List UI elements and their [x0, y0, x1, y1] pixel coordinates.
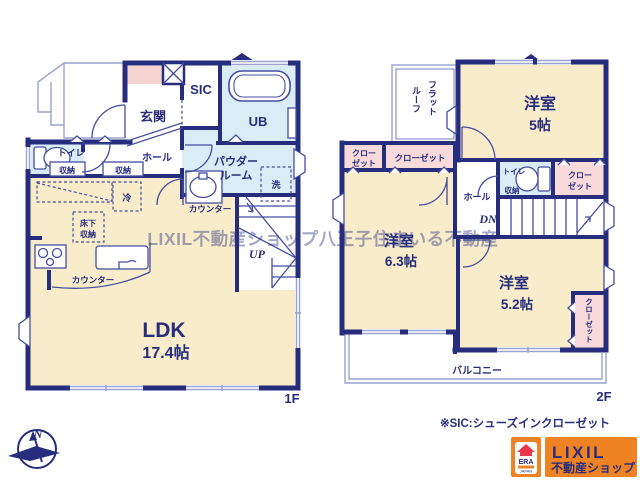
- label-powder-1: パウダー: [214, 154, 258, 168]
- lixil-logo: ERA JAPAN LIXIL 不動産ショップ: [511, 437, 637, 477]
- era-label: ERA: [519, 459, 534, 466]
- entrance-porch: [38, 63, 125, 138]
- kitchen-stove-icon: [35, 245, 66, 268]
- label-ldk: LDK: [142, 319, 185, 342]
- lixil-brand-label: LIXIL: [552, 443, 606, 462]
- label-underfloor-1: 床下: [80, 218, 96, 228]
- label-room63-size: 6.3帖: [385, 253, 418, 269]
- label-toilet-2f: トイレ: [503, 167, 526, 176]
- label-dn: DN: [478, 212, 498, 226]
- label-genkan: 玄関: [140, 109, 166, 124]
- label-sic: SIC: [190, 82, 212, 97]
- label-room5-size: 5帖: [529, 117, 551, 133]
- label-room5: 洋室: [524, 94, 556, 113]
- compass-north-icon: N: [8, 427, 60, 468]
- label-room52: 洋室: [499, 274, 529, 292]
- flat-roof: [392, 65, 458, 143]
- bay-window-right-stairs: [604, 201, 614, 232]
- label-up: UP: [249, 247, 266, 261]
- label-hall-1f: ホール: [142, 152, 172, 164]
- label-closet-d: クローゼット: [584, 298, 593, 344]
- era-japan-label: JAPAN: [520, 469, 533, 474]
- label-counter-a: カウンター: [189, 204, 232, 214]
- label-hall-2f: ホール: [463, 192, 490, 202]
- label-powder-2: ルーム: [220, 169, 253, 182]
- label-1f: 1F: [284, 391, 299, 406]
- label-2f: 2F: [596, 389, 611, 404]
- sic-note: ※SIC:シューズインクローゼット: [440, 416, 610, 430]
- label-flatroof-1: フラット: [427, 80, 437, 116]
- bay-window-left-2f: [333, 193, 344, 225]
- label-fridge: 冷: [122, 192, 131, 203]
- bay-window-flatroof: [447, 106, 456, 134]
- label-counter-b: カウンター: [72, 275, 115, 285]
- genkan-step-line: [127, 123, 182, 146]
- watermark-text: LIXIL不動産ショップ八王子住まいる不動産: [147, 229, 498, 249]
- label-storage-2f: 収納: [505, 185, 520, 195]
- lixil-sub-label: 不動産ショップ: [551, 460, 636, 475]
- label-closet-a1: クロー: [352, 148, 376, 158]
- bay-window-right-1f: [294, 149, 305, 179]
- label-balcony: バルコニー: [452, 365, 502, 377]
- powder-sink-icon: [186, 171, 222, 203]
- x-box-symbol: [163, 63, 184, 84]
- label-storage-b: 収納: [115, 165, 131, 175]
- label-closet-b: クローゼット: [394, 153, 445, 163]
- label-storage-a: 収納: [59, 165, 75, 175]
- floorplan-drawing: 玄関 SIC UB トイレ 収納 収納 ホール パウダー ルーム 洗 カウンター…: [0, 0, 640, 480]
- floorplan-page: 玄関 SIC UB トイレ 収納 収納 ホール パウダー ルーム 洗 カウンター…: [0, 0, 640, 480]
- room-63jo: [344, 170, 455, 332]
- kitchen-sink-icon: [96, 246, 148, 269]
- label-ub: UB: [249, 114, 268, 129]
- label-laundry: 洗: [271, 179, 280, 190]
- label-closet-c2: ゼット: [568, 181, 592, 191]
- label-ldk-size: 17.4帖: [142, 343, 189, 362]
- label-underfloor-2: 収納: [80, 229, 96, 239]
- bay-window-left-1f: [19, 316, 30, 347]
- bay-window-right-52: [604, 265, 614, 290]
- label-room52-size: 5.2帖: [501, 296, 534, 312]
- label-flatroof-2: ルーフ: [411, 86, 421, 113]
- genkan-mat: [127, 66, 163, 84]
- label-closet-a2: ゼット: [352, 158, 376, 168]
- compass-north-label: N: [33, 427, 44, 441]
- label-toilet-1f: トイレ: [57, 148, 84, 158]
- label-closet-c1: クロー: [568, 170, 592, 180]
